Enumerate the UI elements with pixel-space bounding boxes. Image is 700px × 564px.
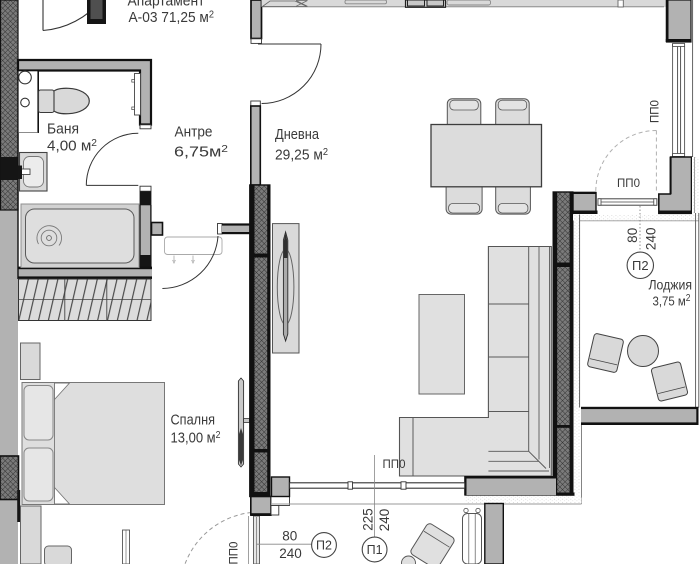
svg-text:ПП0: ПП0 [649, 100, 661, 123]
svg-text:240: 240 [279, 546, 302, 561]
svg-text:Антре: Антре [175, 125, 213, 141]
svg-text:80: 80 [282, 529, 297, 544]
svg-text:ПП0: ПП0 [383, 459, 406, 471]
svg-text:Спалня: Спалня [171, 413, 216, 429]
svg-text:240: 240 [377, 509, 392, 532]
svg-text:6,75м2: 6,75м2 [174, 144, 228, 161]
svg-text:240: 240 [643, 228, 658, 251]
svg-text:ПП0: ПП0 [229, 542, 241, 564]
svg-text:ПП0: ПП0 [617, 178, 640, 190]
svg-text:П2: П2 [632, 258, 649, 273]
svg-text:3,75 м2: 3,75 м2 [653, 293, 691, 309]
svg-text:29,25 м2: 29,25 м2 [275, 147, 328, 164]
svg-text:225: 225 [360, 508, 375, 531]
svg-text:П2: П2 [316, 539, 332, 553]
svg-text:Дневна: Дневна [275, 127, 320, 143]
svg-text:Баня: Баня [47, 122, 79, 138]
svg-text:Апартамент: Апартамент [128, 0, 205, 10]
svg-text:80: 80 [625, 228, 640, 243]
svg-text:Лоджия: Лоджия [649, 278, 693, 293]
svg-text:4,00 м2: 4,00 м2 [47, 138, 97, 155]
svg-text:П1: П1 [367, 543, 383, 557]
svg-text:13,00 м2: 13,00 м2 [171, 430, 221, 447]
svg-text:А-03 71,25 м2: А-03 71,25 м2 [129, 9, 214, 26]
